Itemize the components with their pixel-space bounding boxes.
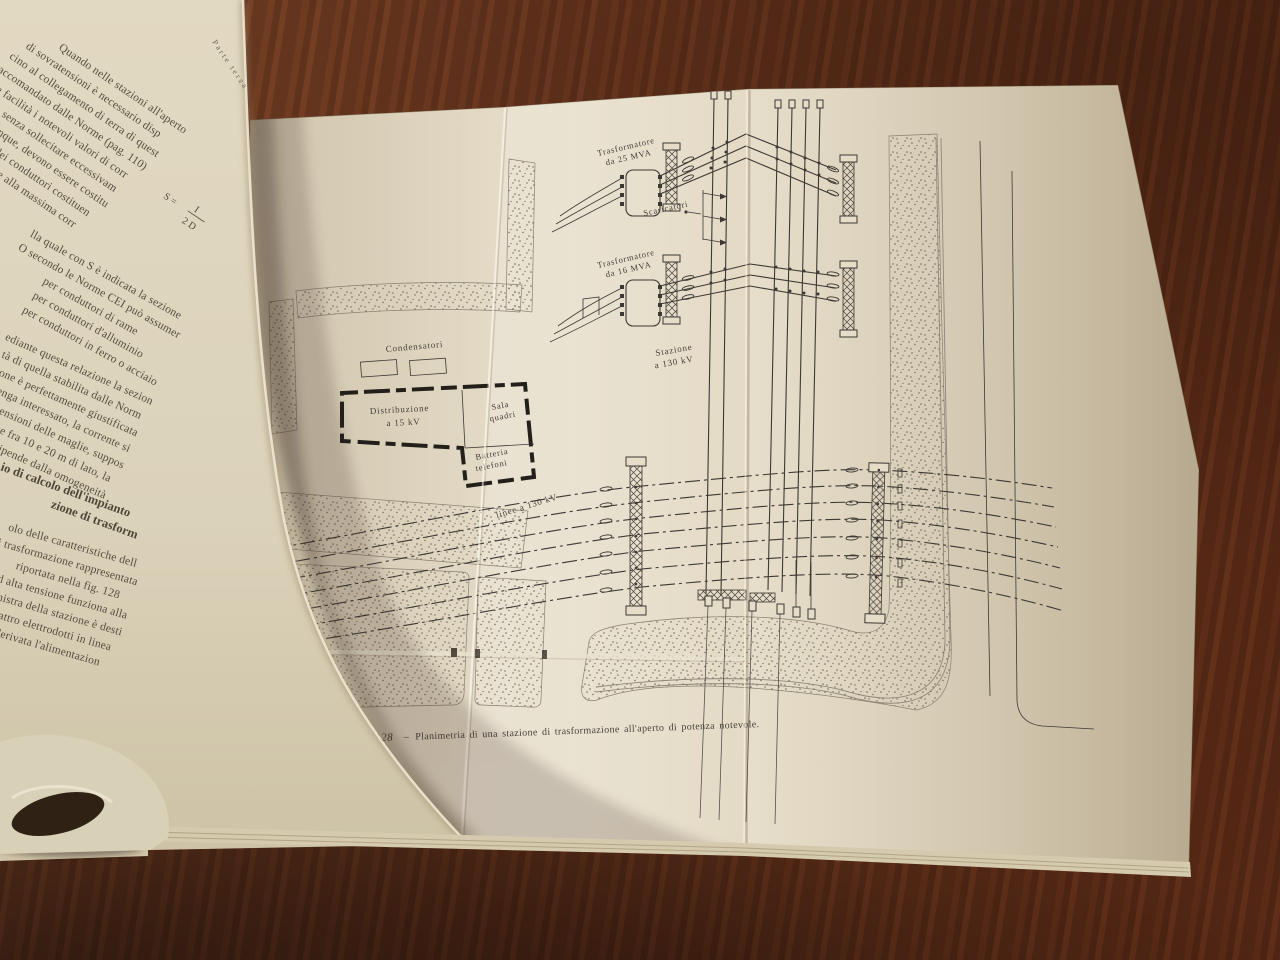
book-photo: Trasformatore da 25 MVA Scaricatori Tras… [0, 0, 1280, 960]
fold-panel-right [745, 85, 1199, 868]
svg-text:a 15 kV: a 15 kV [386, 416, 421, 428]
